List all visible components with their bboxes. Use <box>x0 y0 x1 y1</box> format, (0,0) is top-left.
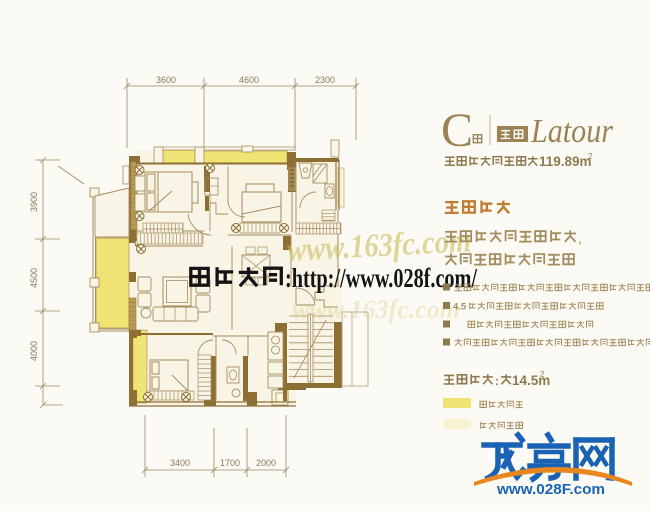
svg-text:4600: 4600 <box>239 75 259 85</box>
svg-text:4000: 4000 <box>29 341 39 361</box>
svg-text:1700: 1700 <box>220 458 240 468</box>
svg-text:www.163fc.com: www.163fc.com <box>292 295 460 324</box>
svg-text:Latour: Latour <box>530 113 614 150</box>
svg-text:C: C <box>441 104 473 157</box>
svg-text:4500: 4500 <box>29 268 39 288</box>
svg-text::: : <box>495 374 499 388</box>
svg-text:3400: 3400 <box>170 458 190 468</box>
svg-text:2000: 2000 <box>256 458 276 468</box>
svg-text:,: , <box>578 230 582 246</box>
svg-text:3600: 3600 <box>156 75 176 85</box>
svg-text:3900: 3900 <box>29 192 39 212</box>
svg-text:2: 2 <box>540 370 545 379</box>
svg-text:4.5: 4.5 <box>453 302 467 313</box>
svg-text:2300: 2300 <box>315 75 335 85</box>
svg-text:119.89m: 119.89m <box>539 154 592 169</box>
svg-text:14.5m: 14.5m <box>512 373 550 388</box>
svg-text:2: 2 <box>588 152 593 161</box>
svg-text:www.028F.com: www.028F.com <box>496 481 605 498</box>
